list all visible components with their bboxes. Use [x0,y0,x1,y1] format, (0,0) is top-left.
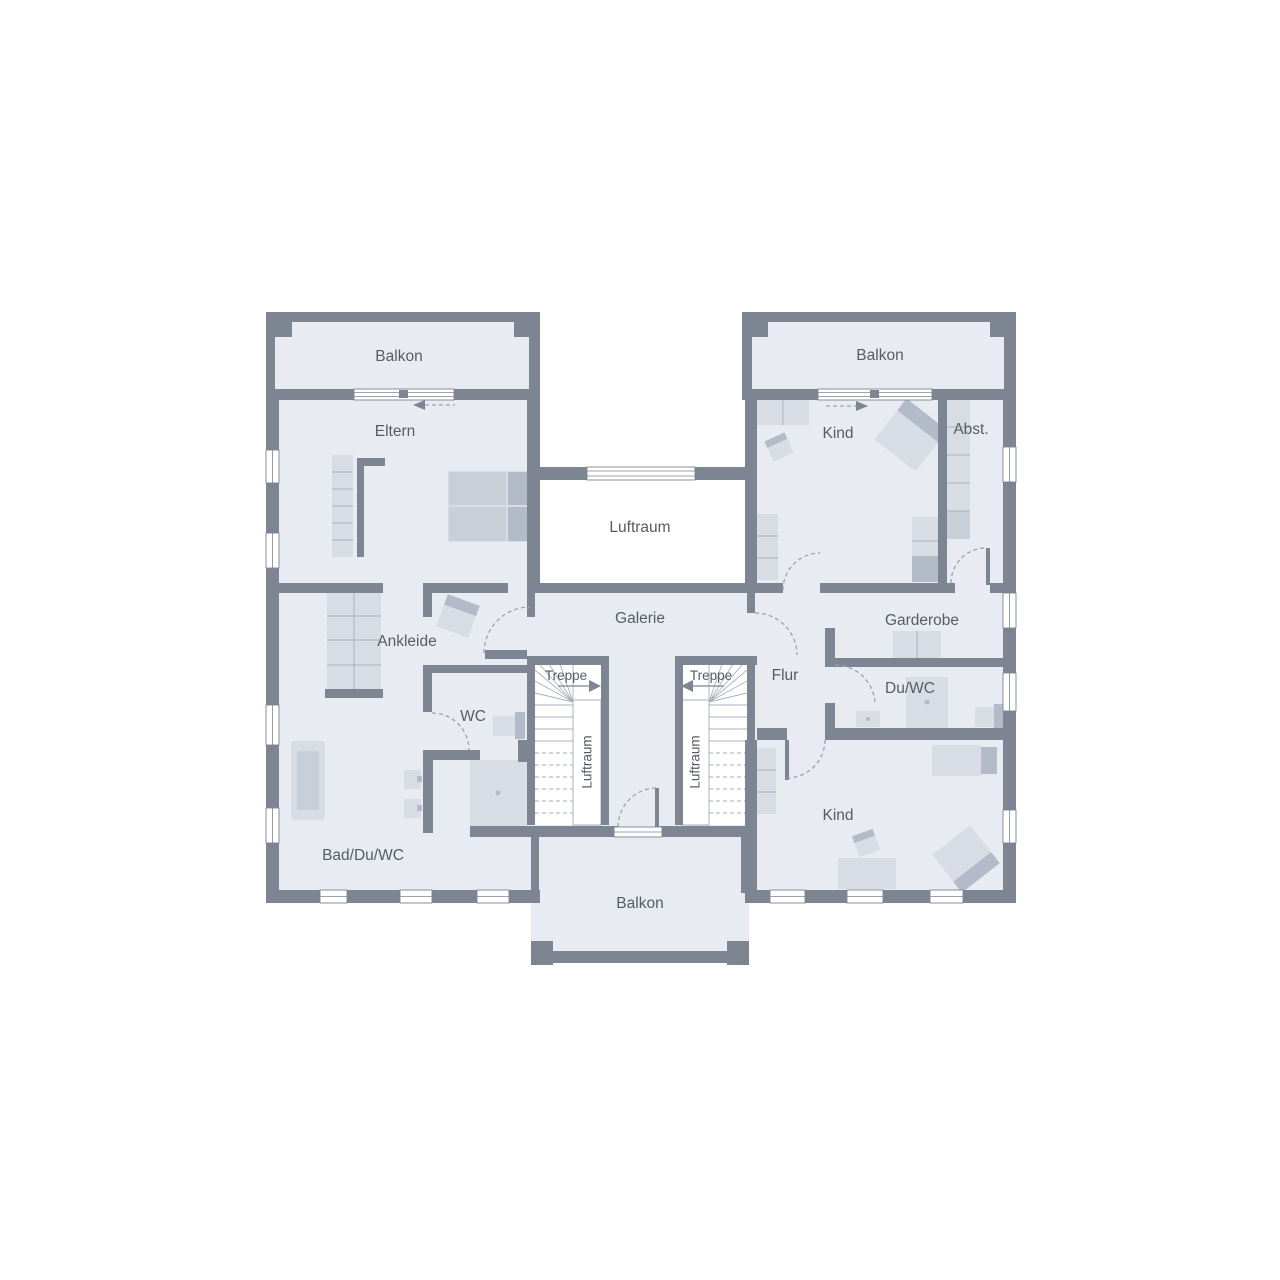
sink-icon [404,770,422,789]
room-label-balkon-top-left: Balkon [375,348,422,365]
room-label-eltern: Eltern [375,423,416,440]
garderobe-cabinet-icon [893,631,941,658]
room-label-galerie: Galerie [615,610,665,627]
window-icon [320,890,347,903]
ankleide-closet-icon [327,592,381,689]
sink-icon [856,711,880,727]
door-leaf [785,740,789,780]
shelf-icon [755,514,778,580]
window-icon [266,808,279,843]
window-icon [266,450,279,483]
stair-label-luftraum-left: Luftraum [580,735,595,788]
window-icon [266,533,279,568]
shower-icon [470,760,527,826]
abst-shelf-icon [947,399,970,539]
stair-label-treppe-right: Treppe [690,668,732,683]
eltern-wardrobe-icon [332,455,353,557]
window-icon [1003,447,1016,482]
window-icon [400,890,432,903]
door-leaf [655,788,659,827]
room-label-kind-bottom: Kind [822,807,853,824]
room-label-balkon-top-right: Balkon [856,347,903,364]
window-icon [1003,593,1016,628]
door-leaf [986,548,990,585]
wardrobe-icon [757,399,809,425]
floor-plan-page: Balkon Balkon Balkon Eltern Kind Abst. L… [0,0,1280,1280]
sliding-door-icon [818,389,932,400]
toilet-icon [493,712,525,739]
room-label-wc: WC [460,708,486,725]
room-label-abst: Abst. [953,421,988,438]
room-label-du-wc: Du/WC [885,680,935,697]
bed-icon [932,745,997,776]
stair-label-treppe-left: Treppe [545,668,587,683]
window-icon [587,467,695,480]
room-label-ankleide: Ankleide [377,633,436,650]
room-label-kind-top: Kind [822,425,853,442]
sink-icon [404,799,422,818]
window-icon [930,890,963,903]
balcony-door-icon [614,827,662,837]
cabinet-icon [912,517,938,582]
room-label-bad-du-wc: Bad/Du/WC [322,847,404,864]
toilet-icon [975,704,1003,730]
room-label-garderobe: Garderobe [885,612,959,629]
sliding-door-icon [354,389,454,400]
room-label-balkon-bottom: Balkon [616,895,663,912]
room-label-luftraum: Luftraum [609,519,670,536]
stair-label-luftraum-right: Luftraum [688,735,703,788]
bathtub-icon [291,741,325,820]
window-icon [266,705,279,745]
desk-icon [838,858,896,889]
window-icon [1003,810,1016,843]
window-icon [477,890,509,903]
window-icon [1003,673,1016,711]
floor-plan-drawing: Balkon Balkon Balkon Eltern Kind Abst. L… [0,0,1280,1280]
window-icon [847,890,883,903]
room-label-flur: Flur [772,667,799,684]
window-icon [770,890,805,903]
double-bed-icon [448,471,528,542]
